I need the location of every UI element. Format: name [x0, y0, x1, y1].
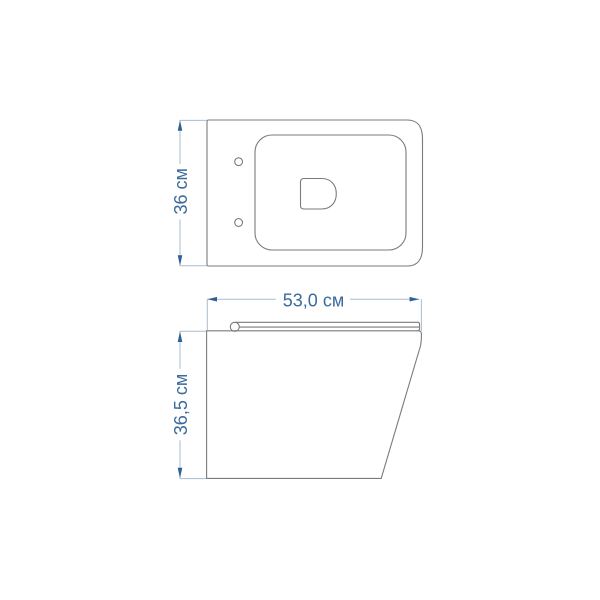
svg-text:36 см: 36 см [171, 168, 191, 214]
svg-text:36,5 см: 36,5 см [171, 374, 191, 435]
svg-text:53,0 см: 53,0 см [283, 291, 344, 311]
